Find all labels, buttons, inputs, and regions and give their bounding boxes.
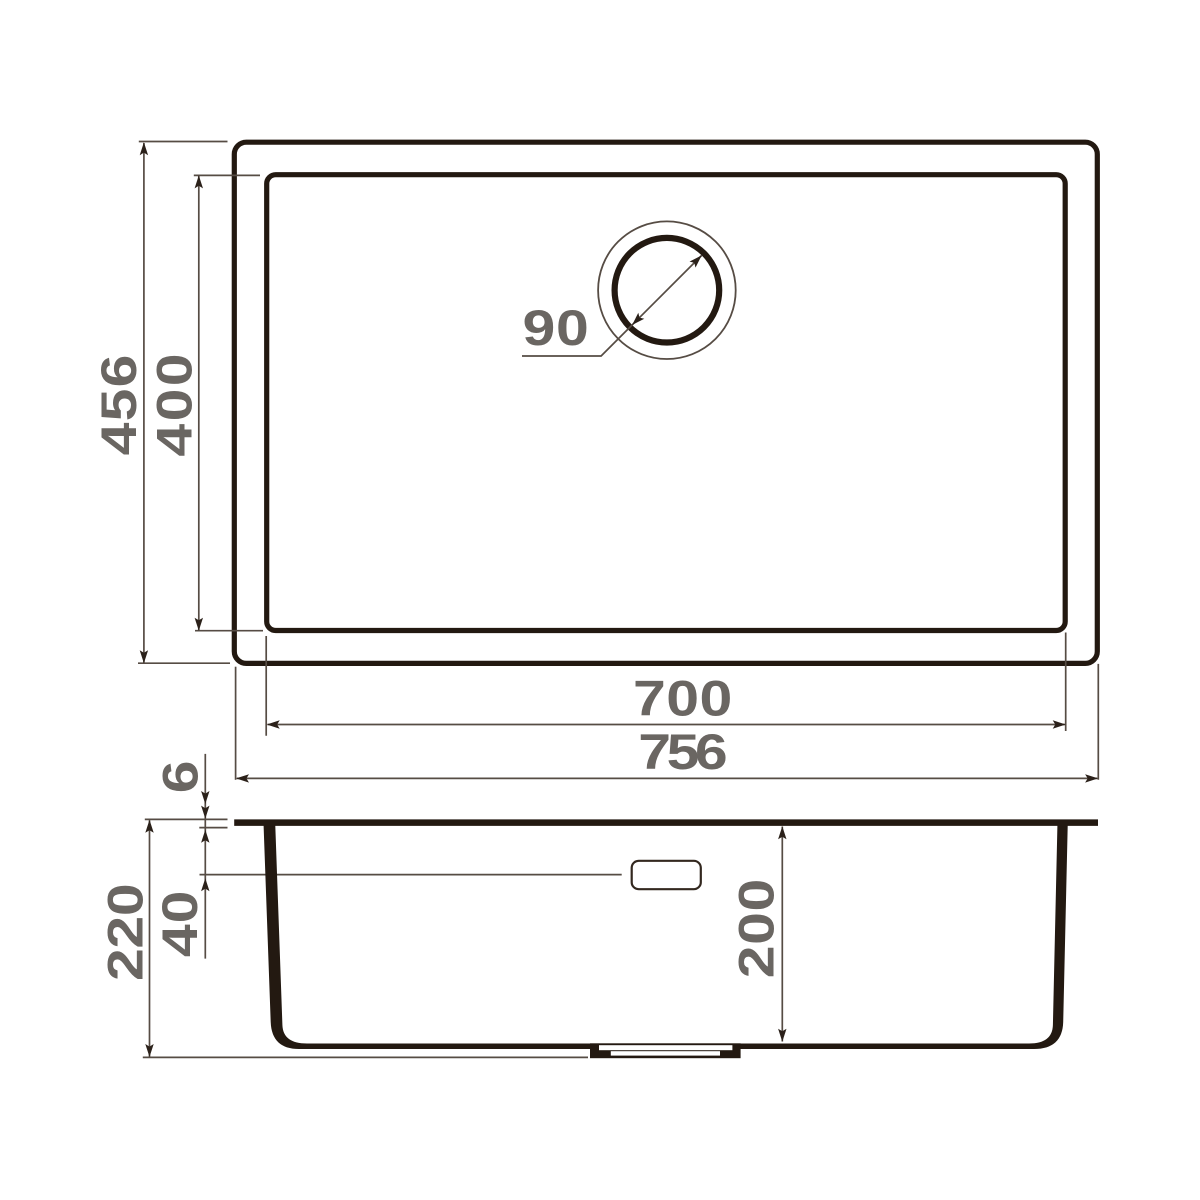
- svg-text:200: 200: [728, 878, 785, 978]
- svg-text:40: 40: [151, 890, 208, 957]
- svg-text:220: 220: [97, 884, 154, 981]
- svg-text:700: 700: [633, 670, 733, 727]
- svg-text:756: 756: [638, 723, 726, 780]
- svg-text:400: 400: [146, 351, 203, 456]
- svg-text:456: 456: [90, 353, 147, 455]
- svg-text:90: 90: [523, 299, 590, 356]
- svg-text:6: 6: [152, 760, 209, 793]
